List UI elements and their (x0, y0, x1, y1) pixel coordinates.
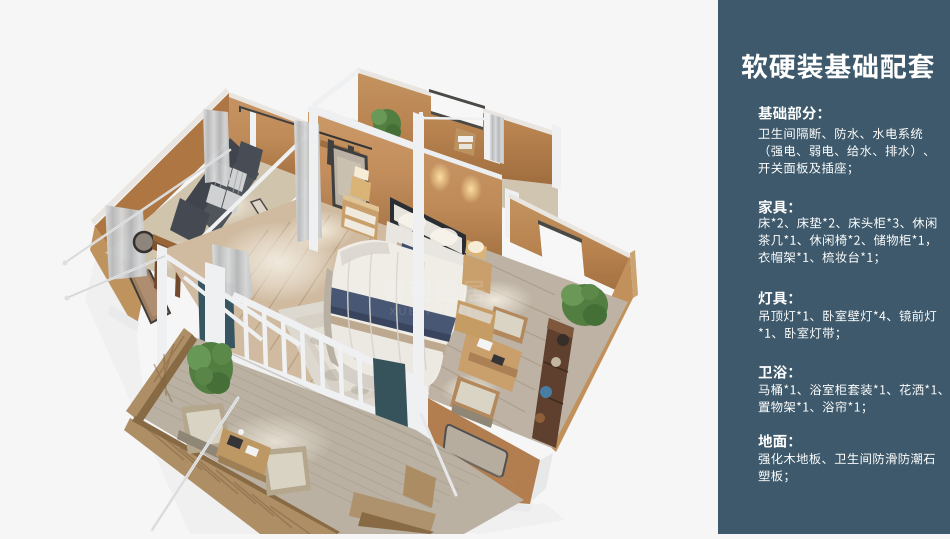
svg-text:XUELI TENT: XUELI TENT (389, 306, 474, 318)
